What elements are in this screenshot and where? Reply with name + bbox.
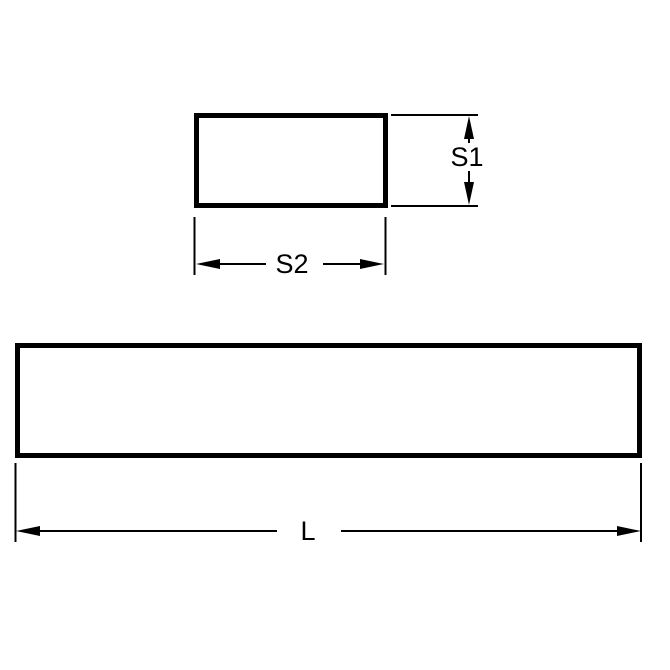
keystock-dimension-diagram: S1 S2 bbox=[0, 0, 670, 670]
l-dimension: L bbox=[16, 463, 642, 546]
s2-arrow-right-icon bbox=[360, 259, 384, 269]
s1-arrow-up-icon bbox=[464, 116, 474, 139]
s2-dimension: S2 bbox=[195, 217, 386, 279]
cross-section-view: S1 S2 bbox=[195, 115, 484, 279]
s2-arrow-left-icon bbox=[196, 259, 220, 269]
s2-label: S2 bbox=[275, 249, 308, 279]
cross-section-rectangle bbox=[197, 116, 386, 206]
l-arrow-left-icon bbox=[16, 526, 40, 536]
l-arrow-right-icon bbox=[617, 526, 641, 536]
s1-arrow-down-icon bbox=[464, 182, 474, 205]
l-label: L bbox=[300, 516, 315, 546]
drawing-canvas: S1 S2 bbox=[0, 0, 670, 670]
s1-dimension: S1 bbox=[391, 115, 484, 206]
s1-label: S1 bbox=[450, 142, 483, 172]
side-view: L bbox=[16, 346, 642, 547]
side-view-rectangle bbox=[18, 346, 640, 456]
